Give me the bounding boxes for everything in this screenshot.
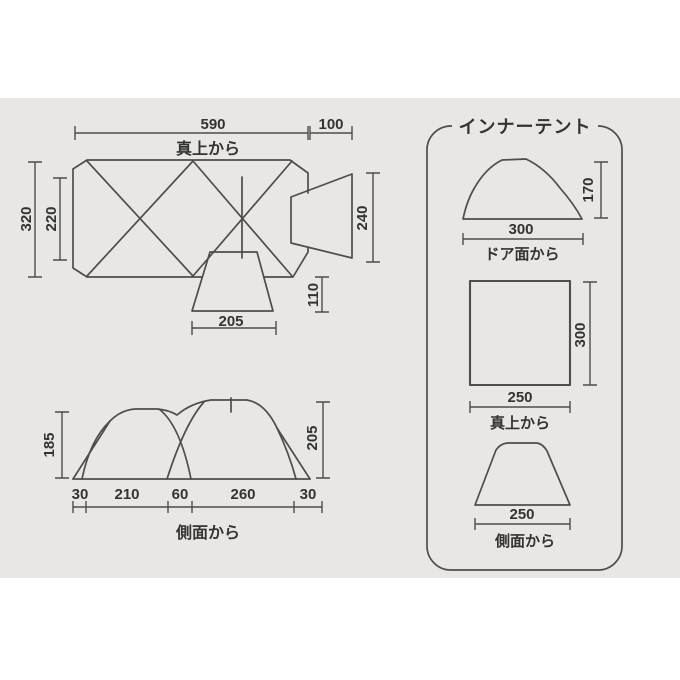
- dim-label-seg-260: 260: [230, 486, 255, 503]
- inner-tent-side-view: 250 側面から: [475, 443, 570, 550]
- door-view-caption: ドア面から: [484, 246, 559, 263]
- pole-x-left: [87, 161, 193, 276]
- dim-label-seg-210: 210: [114, 486, 139, 503]
- dim-label-300-floor: 300: [572, 322, 589, 347]
- tent-dimension-diagram: 590 100 真上から 320 220 240 110 205 185 205: [0, 0, 680, 680]
- dim-label-220: 220: [43, 206, 60, 231]
- dim-label-185: 185: [41, 432, 58, 457]
- dim-label-100: 100: [318, 116, 343, 133]
- dim-label-205-top: 205: [218, 313, 243, 330]
- left-dome-rear-edge: [159, 409, 191, 479]
- floor-rectangle: [470, 281, 570, 385]
- porch-outline: [291, 174, 352, 258]
- dim-label-170: 170: [580, 177, 597, 202]
- dim-label-seg-30b: 30: [300, 486, 317, 503]
- guy-line-left: [73, 421, 110, 479]
- inner-tent-title: インナーテント: [459, 117, 592, 137]
- side-view-caption: 側面から: [175, 523, 240, 542]
- dim-label-320: 320: [18, 206, 35, 231]
- entrance-canopy-outline: [192, 252, 273, 311]
- dim-label-seg-30a: 30: [72, 486, 89, 503]
- dim-label-205-side: 205: [304, 425, 321, 450]
- inner-tent-panel: インナーテント 170 300 ドア面から 300 250 真上から: [427, 117, 622, 570]
- dim-line-590: [75, 126, 308, 140]
- dim-label-250-side: 250: [509, 506, 534, 523]
- inner-top-view-caption: 真上から: [490, 414, 550, 432]
- dim-label-240: 240: [354, 205, 371, 230]
- inner-tent-door-view: 170 300 ドア面から: [463, 159, 608, 263]
- dim-label-seg-60: 60: [172, 486, 189, 503]
- tent-spec-sheet: 590 100 真上から 320 220 240 110 205 185 205: [0, 0, 680, 680]
- inner-tent-top-view: 300 250 真上から: [470, 281, 597, 432]
- dim-label-110: 110: [305, 283, 322, 307]
- dim-label-590: 590: [200, 116, 225, 133]
- side-view-dome-outline: [475, 443, 570, 505]
- top-view: 590 100 真上から 320 220 240 110 205: [18, 116, 380, 335]
- dim-line-ground-segments: [73, 501, 322, 513]
- side-view: 185 205 30 210 60 260 30 側面から: [41, 398, 330, 542]
- tent-footprint-outline-upper: [73, 160, 308, 277]
- dim-label-300-door: 300: [508, 221, 533, 238]
- dim-label-250-floor: 250: [507, 389, 532, 406]
- inner-side-view-caption: 側面から: [494, 532, 555, 550]
- top-view-caption: 真上から: [176, 139, 240, 158]
- door-view-dome-outline: [463, 159, 582, 219]
